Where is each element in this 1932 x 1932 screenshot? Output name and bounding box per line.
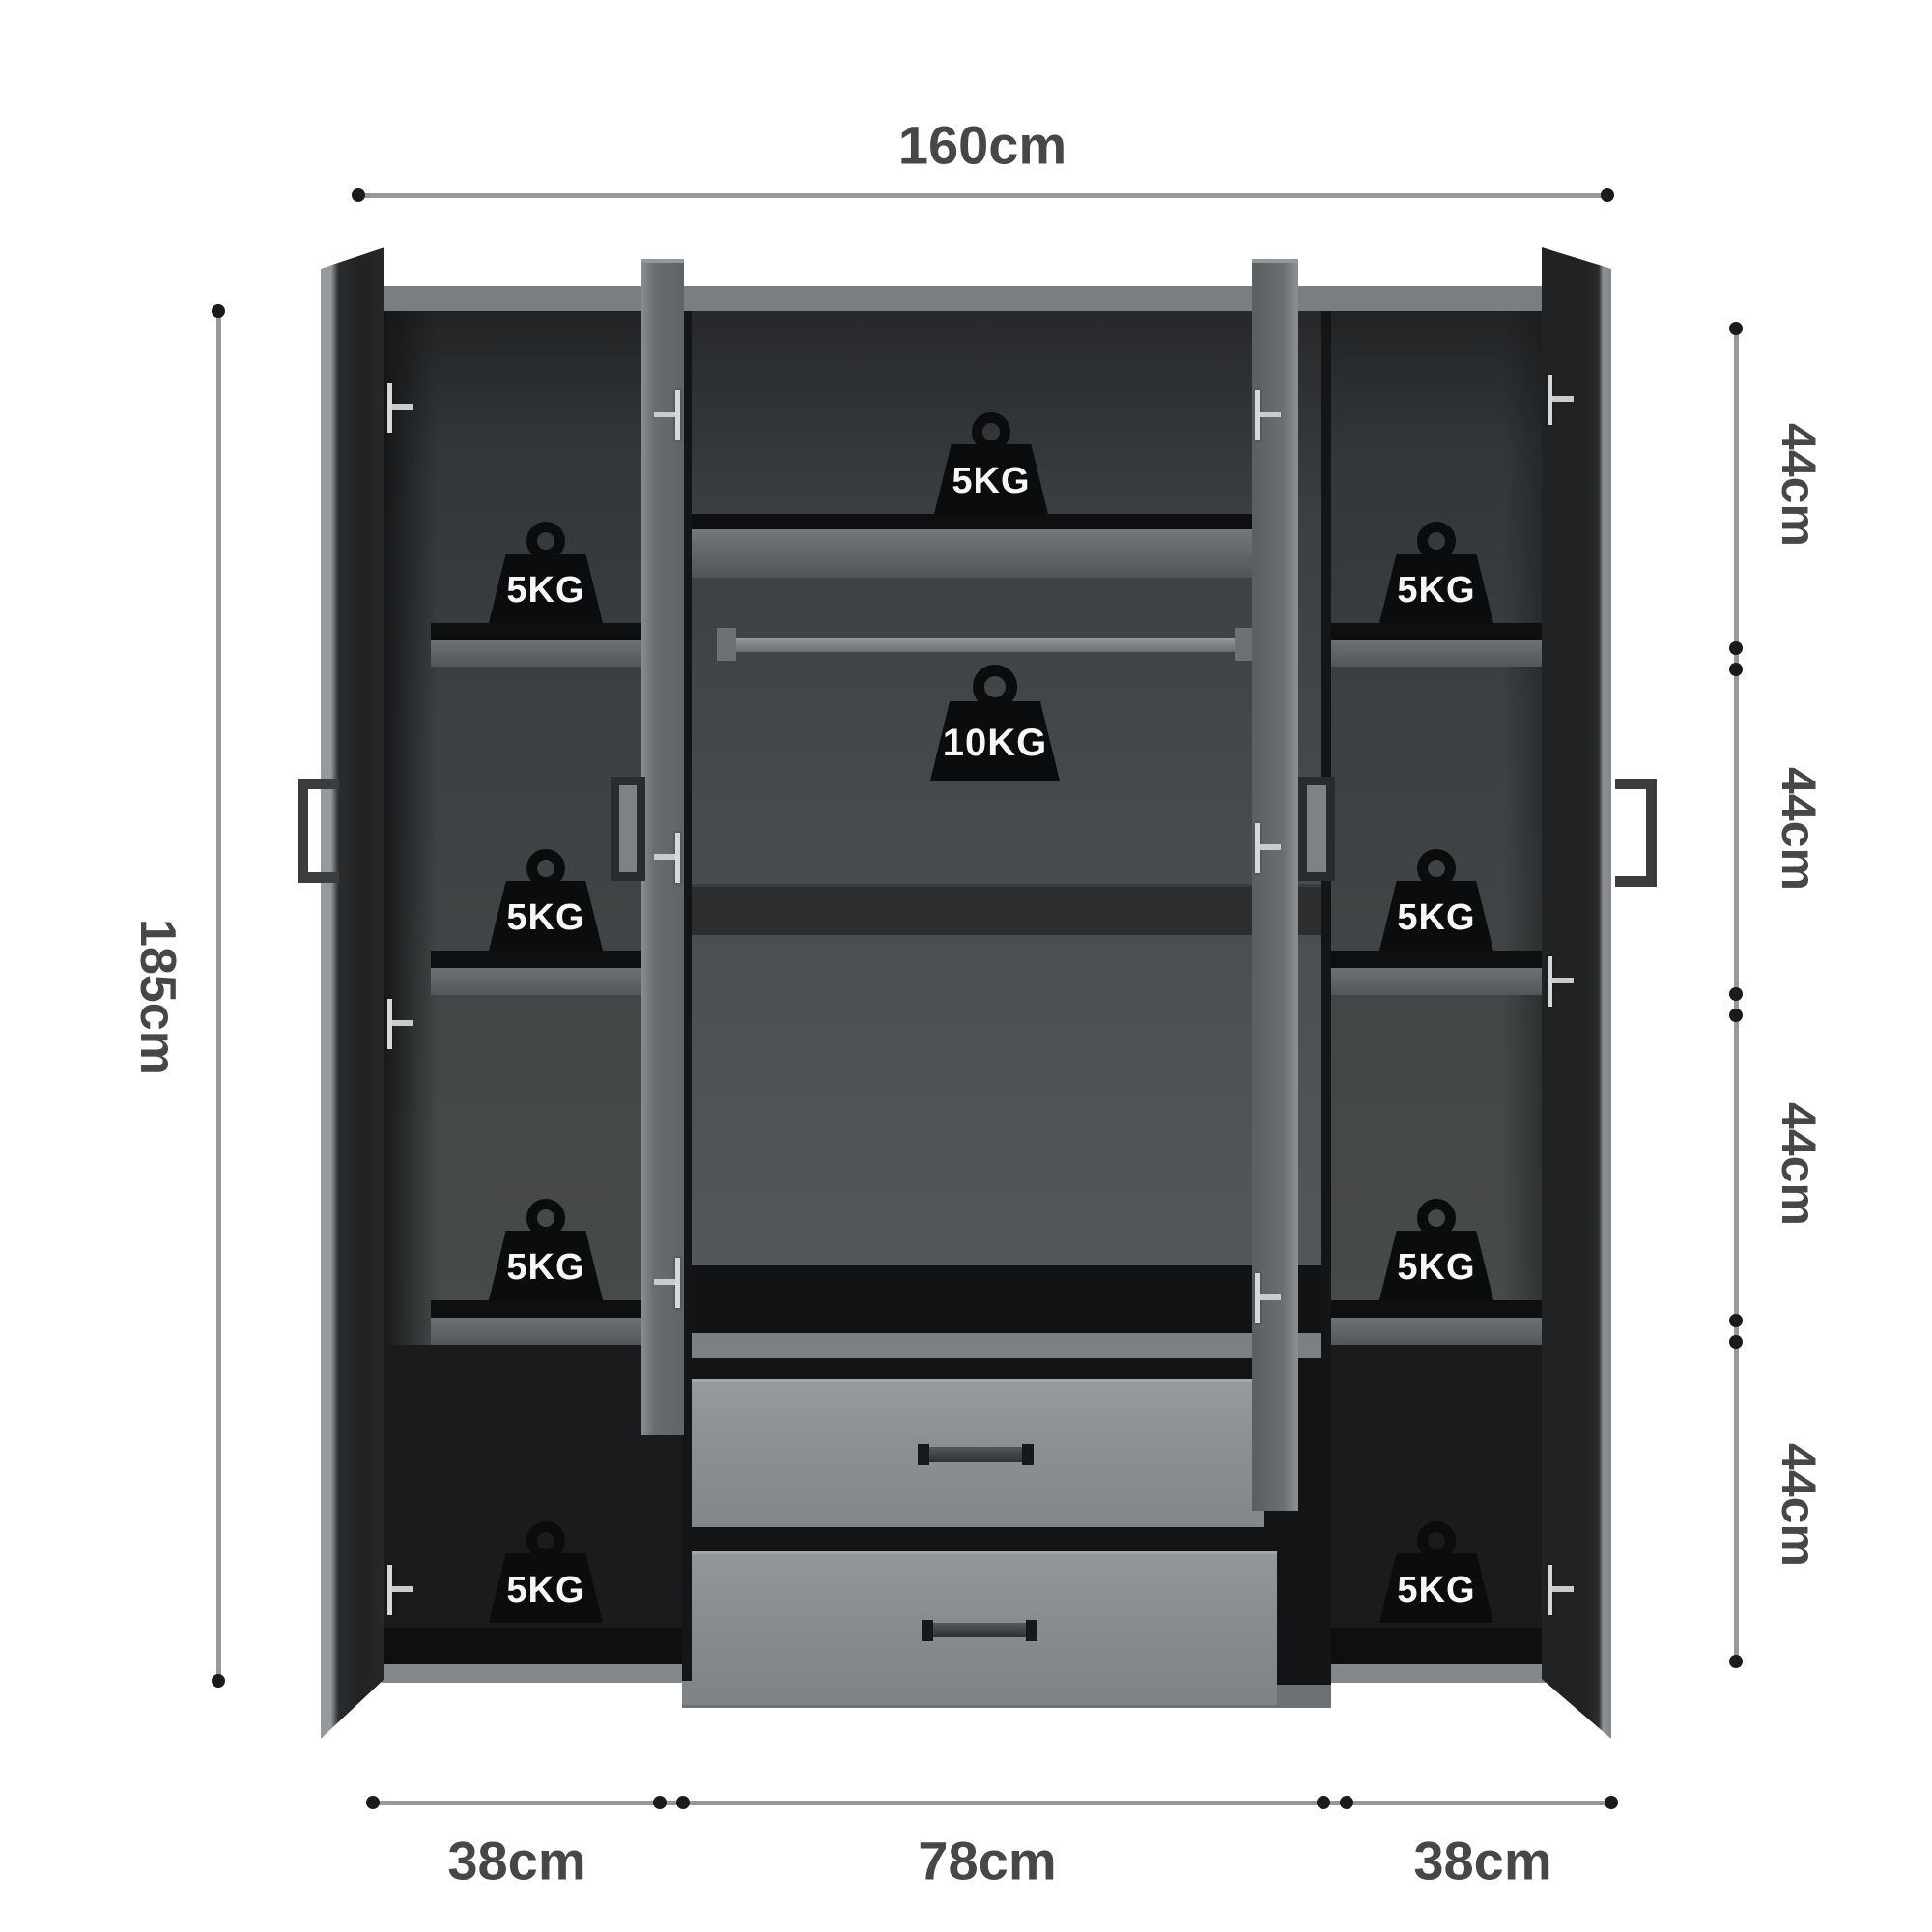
dimension-dot: [653, 1796, 667, 1809]
capacity-badge-rail: 10KG: [930, 665, 1060, 781]
drawer-lower-handle: [929, 1623, 1030, 1637]
dimension-line-bottom: [373, 1801, 1611, 1805]
capacity-badge: 5KG: [934, 412, 1048, 514]
capacity-badge: 5KG: [1379, 1199, 1493, 1300]
right-shelf-2-edge: [1331, 968, 1542, 995]
dimension-dot: [1729, 1009, 1743, 1022]
door-left-handle: [298, 779, 339, 883]
dimension-dot: [1605, 1796, 1618, 1809]
door-right-handle: [1615, 779, 1657, 887]
partition-right: [1321, 311, 1331, 1681]
dimension-label-right-1: 44cm: [1771, 423, 1827, 547]
capacity-badge: 5KG: [489, 849, 603, 951]
dimension-label-right-3: 44cm: [1771, 1102, 1827, 1226]
weight-body-icon: 5KG: [489, 1231, 603, 1300]
dimension-label-top: 160cm: [898, 114, 1066, 177]
hinge-icon: [1548, 956, 1552, 1007]
left-floor: [382, 1628, 682, 1664]
center-floor: [692, 1265, 1321, 1333]
dimension-label-bottom-3: 38cm: [1413, 1830, 1551, 1892]
capacity-badge: 5KG: [489, 522, 603, 623]
center-top-shelf-edge: [692, 529, 1252, 578]
door-left-open: [321, 247, 384, 1741]
dimension-label-left: 185cm: [128, 919, 186, 1075]
weight-body-icon: 5KG: [489, 554, 603, 623]
weight-body-icon: 5KG: [1379, 554, 1493, 623]
dimension-line-left: [216, 311, 221, 1681]
capacity-badge: 5KG: [1379, 849, 1493, 951]
hanging-rail-bracket-right: [1235, 628, 1254, 661]
weight-body-icon: 10KG: [930, 701, 1060, 781]
door-inner-right-handle-recess: [1298, 777, 1335, 881]
dimension-label-bottom-1: 38cm: [447, 1830, 585, 1892]
weight-body-icon: 5KG: [1379, 1553, 1493, 1623]
dimension-dot: [1729, 1335, 1743, 1349]
weight-body-icon: 5KG: [489, 881, 603, 951]
dimension-line-top: [358, 193, 1607, 198]
dimension-dot: [1729, 1655, 1743, 1668]
hinge-icon: [387, 383, 392, 433]
hinge-icon: [1548, 375, 1552, 425]
hinge-icon: [675, 390, 680, 440]
dimension-label-right-4: 44cm: [1771, 1443, 1827, 1567]
dimension-dot: [1729, 641, 1743, 655]
right-shelf-1-top: [1331, 623, 1542, 640]
right-shelf-2-top: [1331, 951, 1542, 968]
hinge-icon: [1255, 390, 1260, 440]
capacity-badge: 5KG: [1379, 1521, 1493, 1623]
dimension-dot: [1729, 987, 1743, 1001]
right-shelf-3-top: [1331, 1300, 1542, 1318]
center-top-shelf-top: [692, 514, 1252, 529]
dimension-label-right-2: 44cm: [1771, 767, 1827, 891]
hinge-icon: [1255, 1273, 1260, 1323]
dimension-dot: [366, 1796, 380, 1809]
dimension-label-bottom-2: 78cm: [918, 1830, 1056, 1892]
door-inner-left-handle-recess: [611, 777, 645, 881]
weight-body-icon: 5KG: [1379, 881, 1493, 951]
hinge-icon: [387, 999, 392, 1049]
hinge-icon: [1255, 823, 1260, 873]
right-shelf-3-edge: [1331, 1318, 1542, 1345]
hinge-icon: [675, 833, 680, 883]
dimension-dot: [352, 188, 365, 202]
drawer-upper-handle: [925, 1447, 1026, 1462]
weight-body-icon: 5KG: [489, 1553, 603, 1623]
dimension-dot: [1601, 188, 1614, 202]
hinge-icon: [675, 1258, 680, 1308]
dimension-dot: [1729, 322, 1743, 335]
dimension-dot: [212, 1674, 225, 1688]
hinge-icon: [387, 1565, 392, 1615]
dimension-dot: [1317, 1796, 1330, 1809]
right-shelf-1-edge: [1331, 640, 1542, 667]
left-bottom-edge: [382, 1664, 682, 1683]
weight-body-icon: 5KG: [934, 444, 1048, 514]
weight-body-icon: 5KG: [1379, 1231, 1493, 1300]
dimension-dot: [1729, 663, 1743, 676]
drawer-top-ledge: [682, 1333, 1331, 1358]
capacity-badge: 5KG: [489, 1199, 603, 1300]
dimension-dot: [212, 304, 225, 318]
dimension-dot: [1729, 1314, 1743, 1327]
product-dimension-diagram: 5KG 5KG 5KG 5KG 5KG 10KG 5KG 5KG 5KG 5KG: [0, 0, 1932, 1932]
capacity-badge: 5KG: [489, 1521, 603, 1623]
dimension-dot: [676, 1796, 690, 1809]
hanging-rail-bracket-left: [717, 628, 736, 661]
dimension-dot: [1340, 1796, 1353, 1809]
hinge-icon: [1548, 1565, 1552, 1615]
hanging-rail: [724, 638, 1252, 652]
capacity-badge: 5KG: [1379, 522, 1493, 623]
center-divider-rail: [692, 884, 1321, 935]
